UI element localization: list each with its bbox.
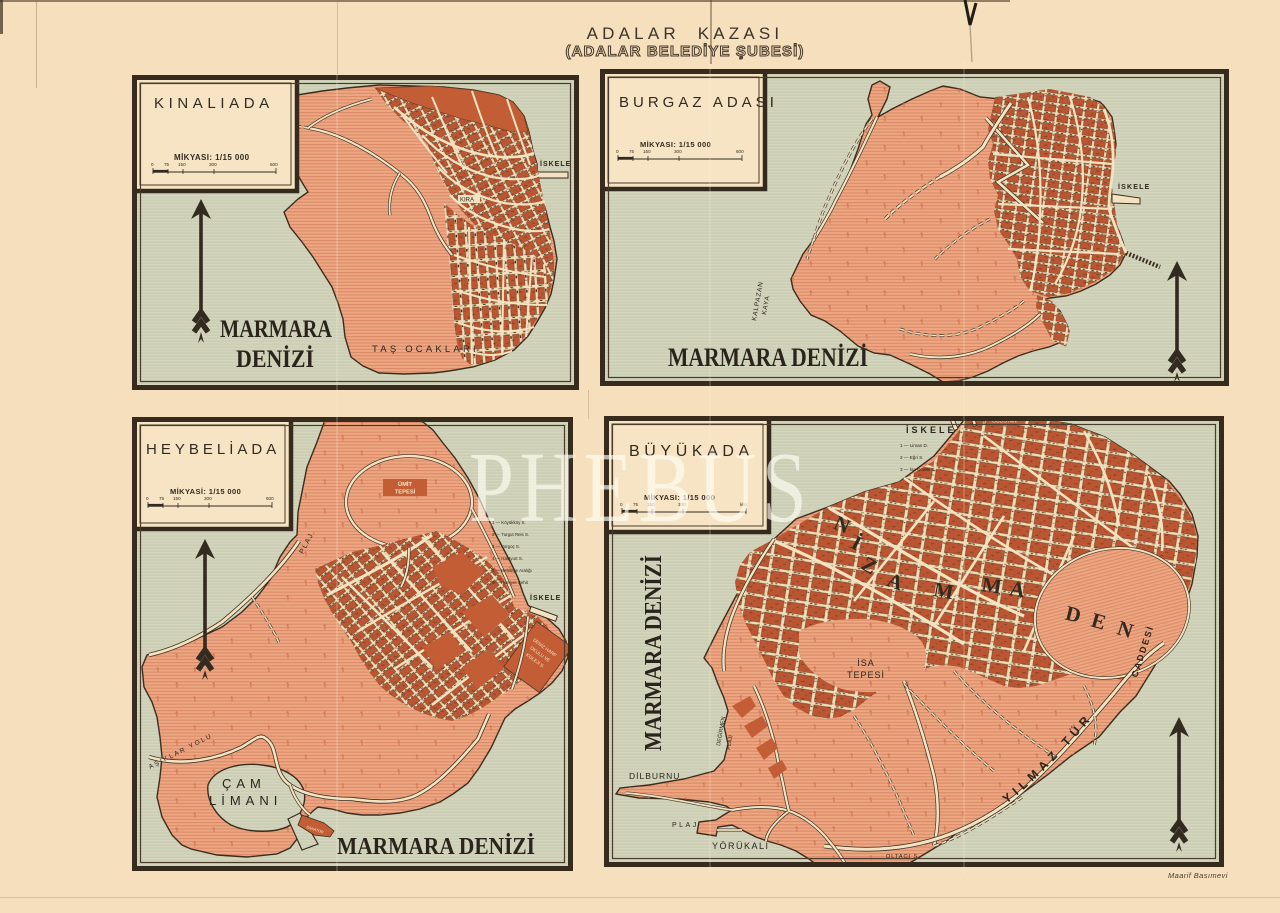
svg-text:MARMARA DENİZİ: MARMARA DENİZİ — [641, 555, 667, 751]
svg-text:HEYBELİADA: HEYBELİADA — [146, 440, 280, 458]
svg-text:MİKYASI: 1/15 000: MİKYASI: 1/15 000 — [640, 140, 711, 149]
svg-text:PLAJ: PLAJ — [672, 822, 699, 829]
svg-text:İSKELE: İSKELE — [530, 594, 561, 602]
svg-text:DİLBURNU: DİLBURNU — [629, 771, 680, 781]
svg-text:0: 0 — [616, 149, 619, 154]
svg-text:300: 300 — [674, 149, 682, 154]
svg-text:600: 600 — [736, 149, 744, 154]
svg-text:600: 600 — [266, 496, 274, 501]
svg-text:İSKELE: İSKELE — [906, 425, 957, 435]
svg-text:3 — İsa Çelebi S.: 3 — İsa Çelebi S. — [900, 466, 936, 472]
svg-text:1 — Liman D.: 1 — Liman D. — [900, 443, 928, 448]
svg-text:75: 75 — [629, 149, 635, 154]
svg-text:MARMARA: MARMARA — [220, 316, 332, 343]
svg-text:YÖRÜKALI: YÖRÜKALI — [712, 841, 770, 851]
svg-text:2 — Eğri S.: 2 — Eğri S. — [900, 455, 924, 460]
svg-text:600: 600 — [270, 162, 278, 167]
svg-text:ÇAM: ÇAM — [222, 776, 266, 791]
svg-text:İSKELE: İSKELE — [1118, 183, 1150, 191]
svg-text:KINALIADA: KINALIADA — [154, 95, 274, 112]
svg-text:75: 75 — [159, 496, 165, 501]
svg-text:150: 150 — [643, 149, 651, 154]
svg-text:LİMANI: LİMANI — [209, 793, 282, 808]
svg-text:KIRA: KIRA — [460, 198, 474, 204]
svg-text:4 — Hastyurt S.: 4 — Hastyurt S. — [492, 556, 523, 561]
svg-text:MİKYASİ: 1/15 000: MİKYASİ: 1/15 000 — [170, 487, 241, 496]
svg-text:BURGAZ ADASI: BURGAZ ADASI — [619, 94, 778, 111]
svg-text:6 — Hürriyet Şehit: 6 — Hürriyet Şehit — [492, 580, 529, 585]
svg-text:150: 150 — [173, 496, 181, 501]
svg-text:MARMARA DENİZİ: MARMARA DENİZİ — [668, 343, 868, 372]
svg-text:M: M — [980, 572, 1003, 599]
svg-text:TAŞ OCAKLARI: TAŞ OCAKLARI — [372, 344, 479, 355]
svg-text:İSA: İSA — [857, 658, 875, 668]
svg-text:TEPESİ: TEPESİ — [847, 670, 885, 680]
svg-text:5 — Belediye Aralığı: 5 — Belediye Aralığı — [492, 568, 532, 573]
svg-text:MİKYASI: 1/15 000: MİKYASI: 1/15 000 — [174, 153, 250, 162]
svg-text:300: 300 — [209, 162, 217, 167]
svg-text:0: 0 — [146, 496, 149, 501]
svg-text:150: 150 — [178, 162, 186, 167]
svg-text:İSKELE: İSKELE — [540, 160, 571, 168]
svg-text:MARMARA DENİZİ: MARMARA DENİZİ — [337, 834, 535, 860]
svg-text:75: 75 — [164, 162, 170, 167]
svg-text:TEPESİ: TEPESİ — [395, 489, 416, 496]
svg-text:DENİZİ: DENİZİ — [236, 345, 314, 373]
svg-text:0: 0 — [151, 162, 154, 167]
svg-text:ÜMİT: ÜMİT — [398, 481, 413, 488]
svg-text:300: 300 — [204, 496, 212, 501]
